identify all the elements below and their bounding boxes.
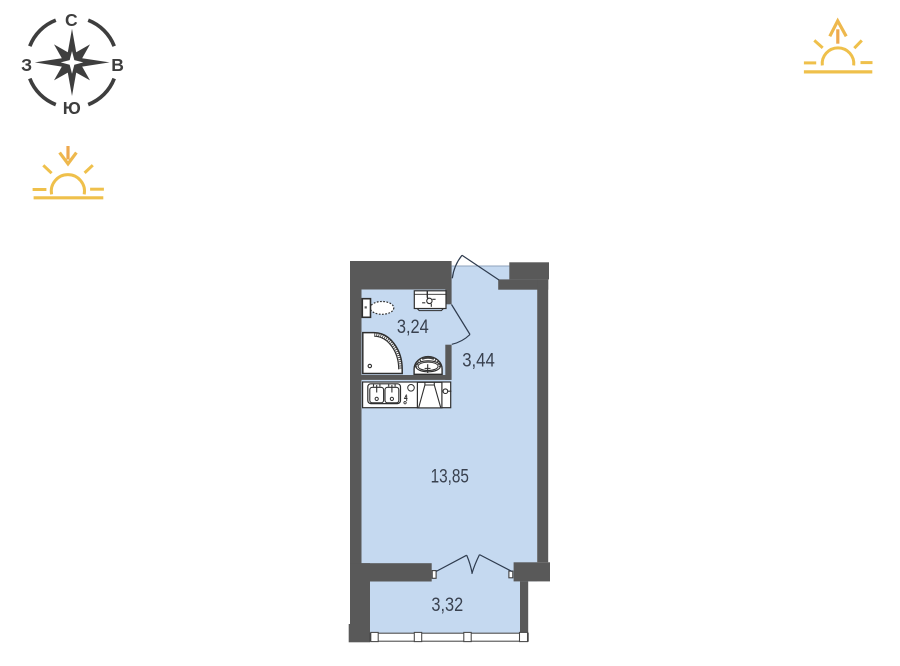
svg-text:13,85: 13,85 xyxy=(431,467,469,488)
svg-text:3,44: 3,44 xyxy=(462,351,495,372)
svg-text:В: В xyxy=(111,55,124,75)
svg-text:3,32: 3,32 xyxy=(431,595,463,616)
svg-text:Ю: Ю xyxy=(63,98,81,118)
svg-text:С: С xyxy=(65,10,78,30)
svg-text:З: З xyxy=(21,55,32,75)
svg-text:3,24: 3,24 xyxy=(397,317,429,338)
